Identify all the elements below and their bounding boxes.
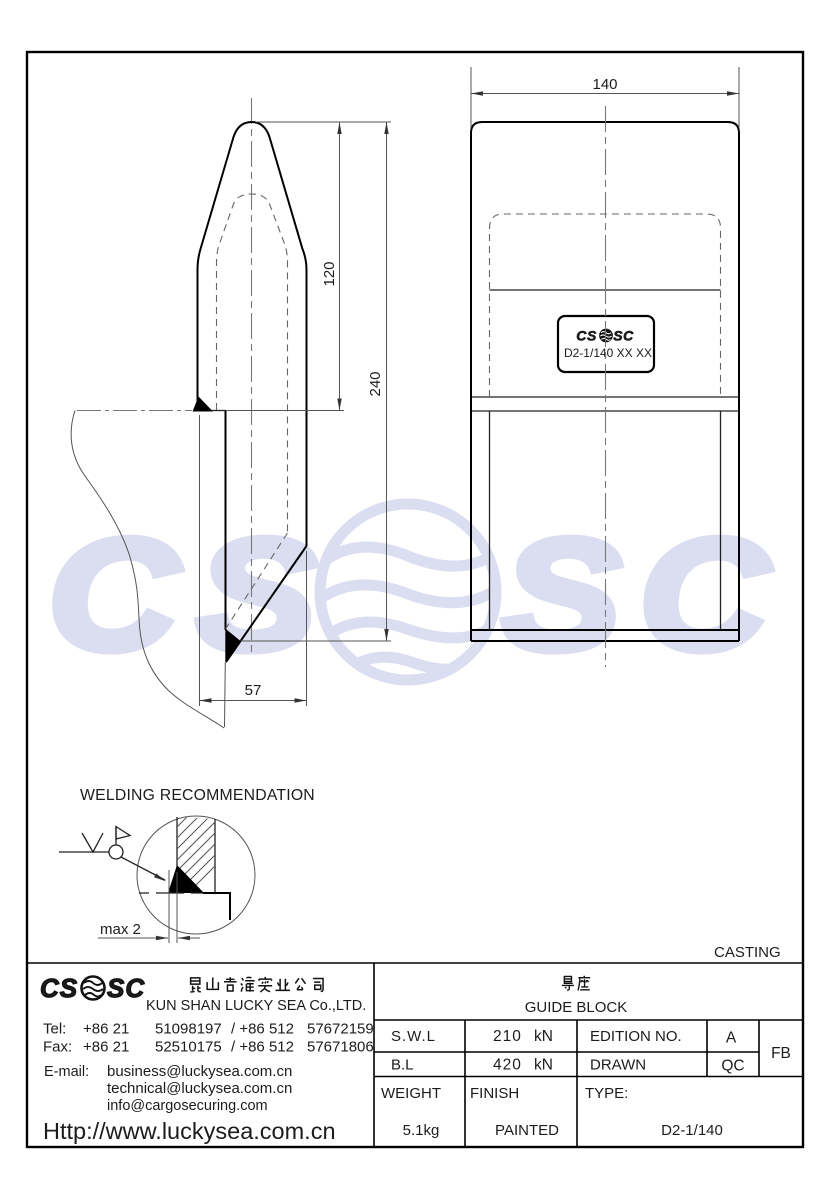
svg-text:kN: kN <box>534 1057 553 1074</box>
svg-text:210: 210 <box>493 1028 522 1045</box>
svg-text:CS: CS <box>48 506 335 682</box>
svg-text:Fax:+86 2152510175/ +86 512576: Fax:+86 2152510175/ +86 51257671806 <box>43 1039 374 1056</box>
svg-text:KUN SHAN LUCKY SEA Co.,LTD.: KUN SHAN LUCKY SEA Co.,LTD. <box>146 998 366 1014</box>
svg-text:FINISH: FINISH <box>470 1085 519 1102</box>
svg-text:FB: FB <box>771 1045 791 1062</box>
svg-text:CASTING: CASTING <box>714 944 781 961</box>
svg-text:120: 120 <box>321 261 338 286</box>
svg-text:SC: SC <box>107 973 145 1003</box>
svg-text:TYPE:: TYPE: <box>585 1085 628 1102</box>
svg-text:A: A <box>726 1030 737 1047</box>
svg-text:kN: kN <box>534 1028 553 1045</box>
svg-text:57: 57 <box>245 682 262 699</box>
svg-text:WEIGHT: WEIGHT <box>381 1085 441 1102</box>
svg-text:S.W.L: S.W.L <box>391 1028 436 1045</box>
svg-text:EDITION NO.: EDITION NO. <box>590 1028 682 1045</box>
svg-text:CS: CS <box>40 973 78 1003</box>
svg-text:DRAWN: DRAWN <box>590 1057 646 1074</box>
svg-text:business@luckysea.com.cn: business@luckysea.com.cn <box>107 1063 292 1080</box>
svg-text:Http://www.luckysea.com.cn: Http://www.luckysea.com.cn <box>43 1118 336 1144</box>
svg-text:140: 140 <box>592 76 617 93</box>
svg-text:420: 420 <box>493 1057 522 1074</box>
svg-text:D2-1/140 XX XX: D2-1/140 XX XX <box>564 346 652 360</box>
svg-text:SC: SC <box>502 506 786 683</box>
svg-text:max 2: max 2 <box>100 921 141 938</box>
svg-text:info@cargosecuring.com: info@cargosecuring.com <box>107 1098 268 1114</box>
svg-text:Tel:+86 2151098197/ +86 512576: Tel:+86 2151098197/ +86 51257672159 <box>43 1021 374 1038</box>
svg-text:SC: SC <box>613 328 634 344</box>
svg-text:D2-1/140: D2-1/140 <box>661 1122 723 1139</box>
svg-text:WELDING RECOMMENDATION: WELDING RECOMMENDATION <box>80 787 315 804</box>
svg-text:B.L: B.L <box>391 1057 414 1074</box>
svg-text:E-mail:: E-mail: <box>44 1064 89 1080</box>
svg-text:QC: QC <box>721 1058 744 1075</box>
svg-text:5.1kg: 5.1kg <box>403 1122 440 1139</box>
svg-text:240: 240 <box>367 371 384 396</box>
svg-text:GUIDE BLOCK: GUIDE BLOCK <box>525 999 628 1016</box>
svg-text:technical@luckysea.com.cn: technical@luckysea.com.cn <box>107 1080 292 1097</box>
svg-text:PAINTED: PAINTED <box>495 1122 559 1139</box>
svg-text:CS: CS <box>576 328 597 344</box>
